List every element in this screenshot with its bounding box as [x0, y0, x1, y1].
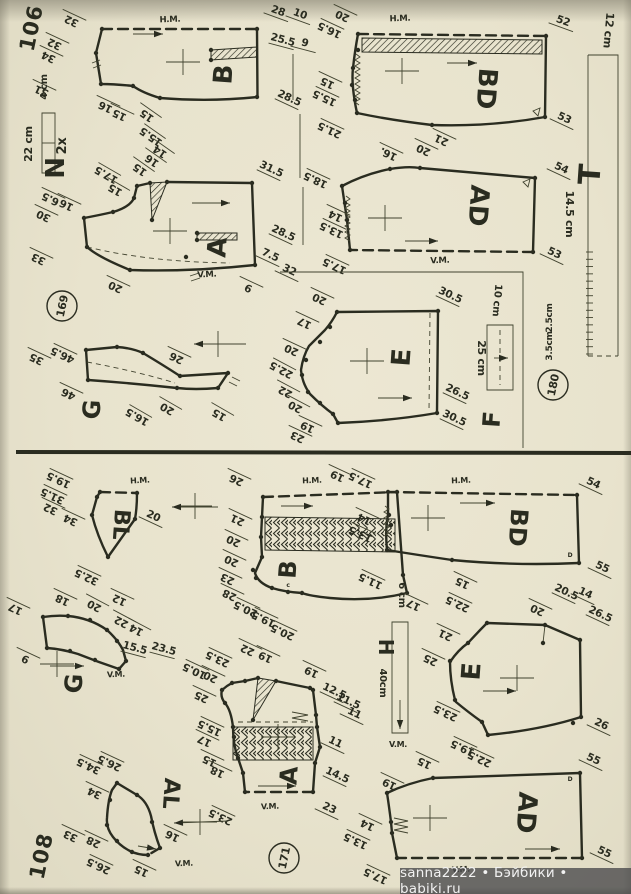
arrowhead-icon — [468, 60, 477, 66]
internal-dashed-line — [429, 313, 430, 411]
hatched-dart — [150, 182, 167, 220]
pattern-point — [318, 401, 322, 405]
pattern-point — [141, 351, 145, 355]
measurement-label: 19 — [303, 663, 321, 680]
pattern-point — [300, 373, 304, 377]
pattern-point — [231, 725, 235, 729]
pattern-point — [395, 856, 399, 860]
pattern-point — [531, 250, 535, 254]
measurement-label: 22 — [239, 641, 257, 658]
measurement-label: D — [568, 776, 573, 783]
measurement-label: 22 cm — [22, 126, 35, 162]
pattern-point — [236, 756, 240, 760]
pattern-point — [480, 720, 484, 724]
measurement-label: 16. — [378, 145, 399, 163]
pattern-point — [259, 535, 263, 539]
piece-ad-top: 16.2018.51413.517.55453V.M.14.5 cmAD — [302, 138, 576, 276]
piece-a-bottom: 22191912.511.5111114.52310.523.5202515.5… — [181, 638, 363, 827]
pattern-point — [575, 493, 579, 497]
pattern-point — [108, 798, 112, 802]
measurement-label: 34 — [86, 784, 104, 801]
hatched-dart — [253, 678, 276, 720]
arrowhead-icon — [486, 500, 495, 506]
measurement-label: 25 — [422, 651, 440, 668]
measurement-label: 11 — [326, 734, 344, 751]
pattern-point — [304, 358, 308, 362]
pattern-point — [131, 84, 135, 88]
piece-outline — [387, 793, 397, 858]
measurement-label: 4 cm — [39, 74, 50, 100]
measurement-label: 18 — [54, 591, 72, 608]
piece-ruler-f: 10 cm25 cmF — [475, 284, 513, 429]
measurement-label: 14 — [576, 585, 594, 602]
measurement-label: 20 — [283, 341, 301, 358]
pattern-point — [146, 853, 150, 857]
pattern-point — [253, 263, 257, 267]
arrowhead-icon — [174, 819, 183, 826]
pattern-point — [226, 371, 230, 375]
pattern-point — [315, 725, 319, 729]
pattern-point — [175, 386, 179, 390]
pattern-point — [350, 83, 354, 87]
measurement-label: 3.5cm — [545, 331, 555, 360]
piece-outline — [387, 550, 579, 564]
measurement-label: D — [568, 552, 573, 559]
pattern-point — [82, 216, 86, 220]
pattern-point — [241, 771, 245, 775]
pattern-point — [418, 166, 422, 170]
pattern-drawing: H.M.281025.5928.53232343116151515.5B1416… — [0, 0, 631, 894]
pattern-point — [98, 490, 102, 494]
pattern-point — [95, 495, 99, 499]
measurement-label: 25 — [193, 688, 211, 705]
pattern-point — [577, 561, 581, 565]
pattern-point — [250, 181, 254, 185]
pattern-point — [128, 268, 132, 272]
pattern-point — [578, 771, 582, 775]
pattern-point — [348, 248, 352, 252]
pattern-point — [86, 378, 90, 382]
measurement-label: 15 — [210, 406, 228, 423]
measurement-label: 46 — [60, 385, 78, 402]
pattern-point — [356, 48, 360, 52]
pattern-point — [356, 32, 360, 36]
measurement-label: 28 — [269, 3, 286, 19]
arrowhead-icon — [304, 503, 313, 509]
piece-letter-G: G — [77, 399, 106, 421]
pattern-point — [232, 735, 236, 739]
measurement-label: 23 — [219, 570, 237, 587]
measurement-label: 20 — [415, 141, 433, 158]
pattern-point — [328, 325, 332, 329]
pattern-point — [85, 245, 89, 249]
arrowhead-icon — [397, 720, 403, 729]
pattern-point — [485, 621, 489, 625]
measurement-label: 53 — [545, 245, 563, 262]
pattern-point — [195, 238, 199, 242]
measurement-label: H.M. — [302, 476, 322, 486]
detail-line — [543, 625, 545, 643]
pattern-point — [448, 659, 452, 663]
piece-letter-F: F — [477, 410, 506, 428]
pattern-point — [318, 745, 322, 749]
pattern-point — [88, 618, 92, 622]
measurement-label: 17 — [7, 600, 25, 617]
measurement-label: 19 — [257, 648, 275, 665]
pattern-point — [260, 555, 264, 559]
piece-outline — [342, 167, 535, 252]
piece-e-top: 30.520172022.52220192326.530.5E — [268, 285, 471, 445]
piece-al: 34.526.534332826.51615V.M.AL — [62, 751, 228, 879]
circled-number-text: 180 — [545, 372, 562, 397]
pattern-point — [311, 790, 315, 794]
measurement-label: 55 — [593, 559, 611, 576]
pattern-point — [386, 490, 390, 494]
piece-ruler-t: 12 cm2.5cm3.5cmT — [545, 12, 618, 361]
pattern-point — [106, 555, 110, 559]
measurement-label: 21 — [433, 131, 451, 148]
measurement-label: V.M. — [107, 670, 126, 680]
piece-ruler-n: 22 cm4 cmN2x — [22, 74, 71, 179]
pattern-point — [94, 51, 98, 55]
measurement-label: 20 — [225, 532, 243, 549]
pattern-point — [331, 412, 335, 416]
measurement-label: 55 — [595, 844, 613, 861]
measurement-label: 52 — [554, 13, 571, 29]
pattern-point — [243, 679, 247, 683]
measurement-label: 15 — [138, 107, 156, 125]
pattern-point — [579, 715, 583, 719]
measurement-label: 2x — [55, 137, 70, 155]
piece-letter-BD: BD — [470, 67, 503, 110]
pattern-point — [466, 641, 470, 645]
pattern-point — [351, 66, 355, 70]
pattern-point — [580, 856, 584, 860]
hatched-dart — [233, 727, 313, 760]
pattern-point — [543, 623, 547, 627]
arrowhead-icon — [172, 504, 181, 510]
pattern-point — [335, 310, 339, 314]
pattern-point — [389, 523, 393, 527]
pattern-point — [68, 649, 72, 653]
pattern-point — [115, 839, 119, 843]
pattern-point — [385, 791, 389, 795]
measurement-label: 6 cm — [396, 582, 407, 608]
measurement-label: 7.5 — [260, 246, 281, 264]
pattern-point — [300, 591, 304, 595]
pattern-point — [544, 34, 548, 38]
detail-line — [355, 54, 360, 105]
piece-g-top: 3546.5462616.52015G — [28, 331, 246, 428]
measurement-label: H.M. — [130, 475, 150, 485]
measurement-label: 6.5 — [40, 190, 61, 208]
measurement-label: V.M. — [430, 256, 450, 267]
pattern-point — [436, 309, 440, 313]
pattern-point — [45, 646, 49, 650]
piece-outline — [387, 773, 582, 858]
pattern-point — [135, 184, 139, 188]
measurement-label: H — [374, 639, 398, 655]
pattern-point — [220, 688, 224, 692]
pattern-point — [543, 115, 547, 119]
fold-edge-dashed — [263, 492, 397, 497]
measurement-label: 53 — [555, 110, 573, 127]
measurement-label: 16 — [164, 827, 182, 844]
measurement-label: 32 — [280, 262, 298, 279]
measurement-label: 30 — [35, 207, 53, 224]
hatched-dart — [362, 38, 542, 54]
piece-letter-BD: BD — [503, 508, 534, 548]
pattern-point — [209, 58, 213, 62]
pattern-point — [178, 374, 182, 378]
measurement-label: N — [41, 157, 71, 178]
pattern-point — [135, 793, 139, 797]
measurement-label: 20 — [86, 597, 104, 614]
piece-outline — [545, 36, 546, 117]
piece-letter-T: T — [572, 162, 608, 185]
pattern-point — [311, 688, 315, 692]
measurement-label: 32 — [63, 12, 81, 29]
measurement-label: c — [286, 582, 290, 589]
pattern-point — [209, 48, 213, 52]
detail-line — [292, 712, 308, 721]
piece-bd-bottom: H.M.17.51413.511.5155455DBD — [347, 468, 611, 591]
pattern-point — [435, 411, 439, 415]
measurement-label: 2.5cm — [545, 303, 555, 332]
arrowhead-icon — [403, 395, 412, 401]
measurement-label: 17 — [296, 314, 314, 331]
pattern-point — [430, 123, 434, 127]
circled-number-180: 180 — [538, 370, 568, 400]
pattern-point — [216, 386, 220, 390]
arrowhead-icon — [194, 341, 203, 347]
pattern-point — [431, 776, 435, 780]
measurement-label: H.M. — [451, 476, 471, 486]
pattern-point — [314, 713, 318, 717]
pattern-point — [313, 761, 317, 765]
pattern-point — [130, 850, 134, 854]
pattern-point — [105, 628, 109, 632]
pattern-point — [115, 345, 119, 349]
piece-letter-E: E — [456, 662, 487, 682]
measurement-label: 16 — [97, 98, 115, 115]
measurement-label: 33 — [62, 827, 80, 844]
measurement-label: 20 — [311, 290, 329, 307]
measurement-label: 21 — [437, 626, 455, 643]
measurement-label: 20 — [334, 7, 352, 24]
piece-bl: H.M.19.531.532342032.5BL — [39, 468, 218, 587]
measurement-label: 15 — [454, 574, 472, 591]
pattern-point — [230, 681, 234, 685]
pattern-point — [255, 95, 259, 99]
measurement-label: 10 — [291, 6, 308, 22]
fold-edge-dashed — [350, 250, 533, 252]
pattern-point — [256, 676, 260, 680]
measurement-label: 15 — [416, 754, 434, 771]
measurement-label: 19 — [329, 467, 347, 484]
circled-number-171: 171 — [269, 843, 299, 873]
pattern-point — [66, 614, 70, 618]
pattern-point — [486, 733, 490, 737]
piece-letter-B: B — [273, 559, 302, 579]
arrowhead-icon — [221, 200, 230, 206]
arrowhead-icon — [75, 663, 84, 669]
section-divider — [16, 452, 631, 453]
arrowhead-icon — [507, 688, 516, 694]
piece-g-bottom: 17182012221415.523.59V.M.G — [7, 588, 178, 694]
measurement-label: V.M. — [175, 859, 194, 869]
measurement-label: H.M. — [389, 14, 410, 25]
pattern-point — [165, 180, 169, 184]
arrowhead-icon — [499, 355, 508, 361]
pattern-point — [100, 27, 104, 31]
detail-line — [523, 179, 530, 187]
pattern-point — [533, 176, 537, 180]
arrowhead-icon — [551, 846, 560, 852]
pattern-point — [158, 96, 162, 100]
pattern-point — [261, 495, 265, 499]
measurement-label: 35 — [28, 350, 46, 367]
pattern-point — [254, 576, 258, 580]
detail-line — [533, 108, 540, 116]
measurement-label: 26 — [228, 471, 246, 488]
pattern-point — [571, 721, 575, 725]
piece-letter-E: E — [386, 348, 417, 368]
piece-bd-top: H.M.52532016.51515.521.521BD — [311, 4, 573, 148]
fold-edge-dashed — [100, 492, 137, 493]
pattern-point — [150, 218, 154, 222]
pattern-point — [124, 659, 128, 663]
measurement-label: 20 — [223, 552, 241, 569]
piece-outline — [96, 29, 258, 100]
arrowhead-icon — [429, 238, 438, 244]
measurement-label: 20 — [529, 601, 547, 618]
pattern-point — [345, 218, 349, 222]
pattern-point — [184, 255, 188, 259]
pattern-point — [223, 701, 227, 705]
piece-letter-BL: BL — [107, 508, 134, 540]
measurement-label: 54 — [552, 160, 570, 177]
measurement-label: V.M. — [389, 740, 407, 749]
pattern-point — [111, 210, 115, 214]
piece-outline — [107, 783, 148, 855]
measurement-label: 12 — [111, 591, 129, 608]
hatched-dart — [211, 47, 257, 60]
measurement-label: 22 — [113, 613, 131, 630]
measurement-label: 26 — [168, 349, 186, 366]
pattern-point — [260, 515, 264, 519]
piece-letter-G: G — [59, 673, 88, 695]
pattern-point — [135, 491, 139, 495]
detail-line — [229, 377, 240, 386]
piece-outline — [86, 347, 228, 389]
watermark-text: sanna2222 • Бэйбики • babiki.ru — [400, 865, 631, 894]
pattern-point — [453, 698, 457, 702]
measurement-label: 33 — [30, 250, 48, 267]
pattern-point — [541, 641, 545, 645]
measurement-label: 34 — [62, 511, 80, 528]
pattern-point — [390, 831, 394, 835]
piece-letter-A: A — [202, 236, 233, 258]
pattern-point — [243, 790, 247, 794]
pattern-point — [251, 718, 255, 722]
measurement-label: H.M. — [159, 15, 180, 26]
measurement-label: 55 — [584, 751, 602, 768]
measurement-label: V.M. — [197, 270, 217, 281]
pattern-point — [387, 513, 391, 517]
detail-line — [588, 55, 618, 356]
piece-outline — [301, 311, 438, 423]
piece-outline — [577, 495, 579, 563]
pattern-point — [84, 348, 88, 352]
pattern-point — [158, 846, 162, 850]
hatched-dart — [265, 517, 395, 552]
pattern-sheet-page: H.M.281025.5928.53232343116151515.5B1416… — [0, 0, 631, 894]
measurement-label: 21 — [229, 511, 247, 528]
pattern-point — [93, 658, 97, 662]
pattern-point — [99, 82, 103, 86]
measurement-label: 10 cm — [490, 284, 504, 317]
measurement-label: 40cm — [377, 668, 388, 697]
measurement-label: 28 — [85, 833, 103, 850]
pattern-point — [286, 590, 290, 594]
pattern-point — [251, 568, 255, 572]
measurement-label: 9 — [300, 36, 310, 49]
pattern-point — [340, 184, 344, 188]
pattern-point — [274, 679, 278, 683]
detail-line — [92, 60, 101, 68]
piece-letter-AD: AD — [462, 184, 495, 228]
pattern-point — [353, 98, 357, 102]
arrowhead-icon — [154, 31, 163, 37]
piece-b-top: H.M.281025.5928.53232343116151515.5B — [33, 3, 316, 148]
measurement-label: 26 — [592, 716, 610, 733]
circled-number-text: 169 — [54, 294, 71, 318]
piece-ruler-h: 6 cmH40cmV.M. — [374, 582, 408, 749]
pattern-point — [355, 111, 359, 115]
pattern-point — [450, 558, 454, 562]
pattern-point — [270, 586, 274, 590]
measurement-label: 20 — [158, 400, 176, 417]
measurement-label: 14 — [359, 816, 377, 833]
pattern-point — [306, 390, 310, 394]
measurement-label: 25 cm — [475, 340, 488, 376]
piece-outline — [357, 113, 545, 125]
measurement-label: 15 — [133, 862, 151, 879]
measurement-label: 23 — [320, 800, 338, 817]
pattern-point — [41, 615, 45, 619]
pattern-point — [148, 181, 152, 185]
measurement-label: 54 — [584, 475, 602, 492]
pattern-point — [115, 639, 119, 643]
pattern-point — [385, 548, 389, 552]
fold-edge-dashed — [358, 34, 546, 36]
pattern-point — [389, 820, 393, 824]
pattern-point — [115, 781, 119, 785]
piece-letter-AD: AD — [510, 791, 543, 835]
pattern-point — [150, 820, 154, 824]
piece-letter-B: B — [208, 64, 239, 86]
pattern-point — [343, 201, 347, 205]
piece-letter-AL: AL — [157, 777, 184, 810]
pattern-point — [90, 513, 94, 517]
measurement-label: V.M. — [261, 802, 280, 812]
measurement-label: 14.5 cm — [563, 191, 576, 238]
pattern-point — [105, 823, 109, 827]
circled-number-text: 171 — [276, 846, 293, 870]
measurement-label: 12 cm — [600, 12, 616, 49]
piece-e-bottom: 22.5212523.519.522.52020.51426.526E — [422, 582, 614, 770]
